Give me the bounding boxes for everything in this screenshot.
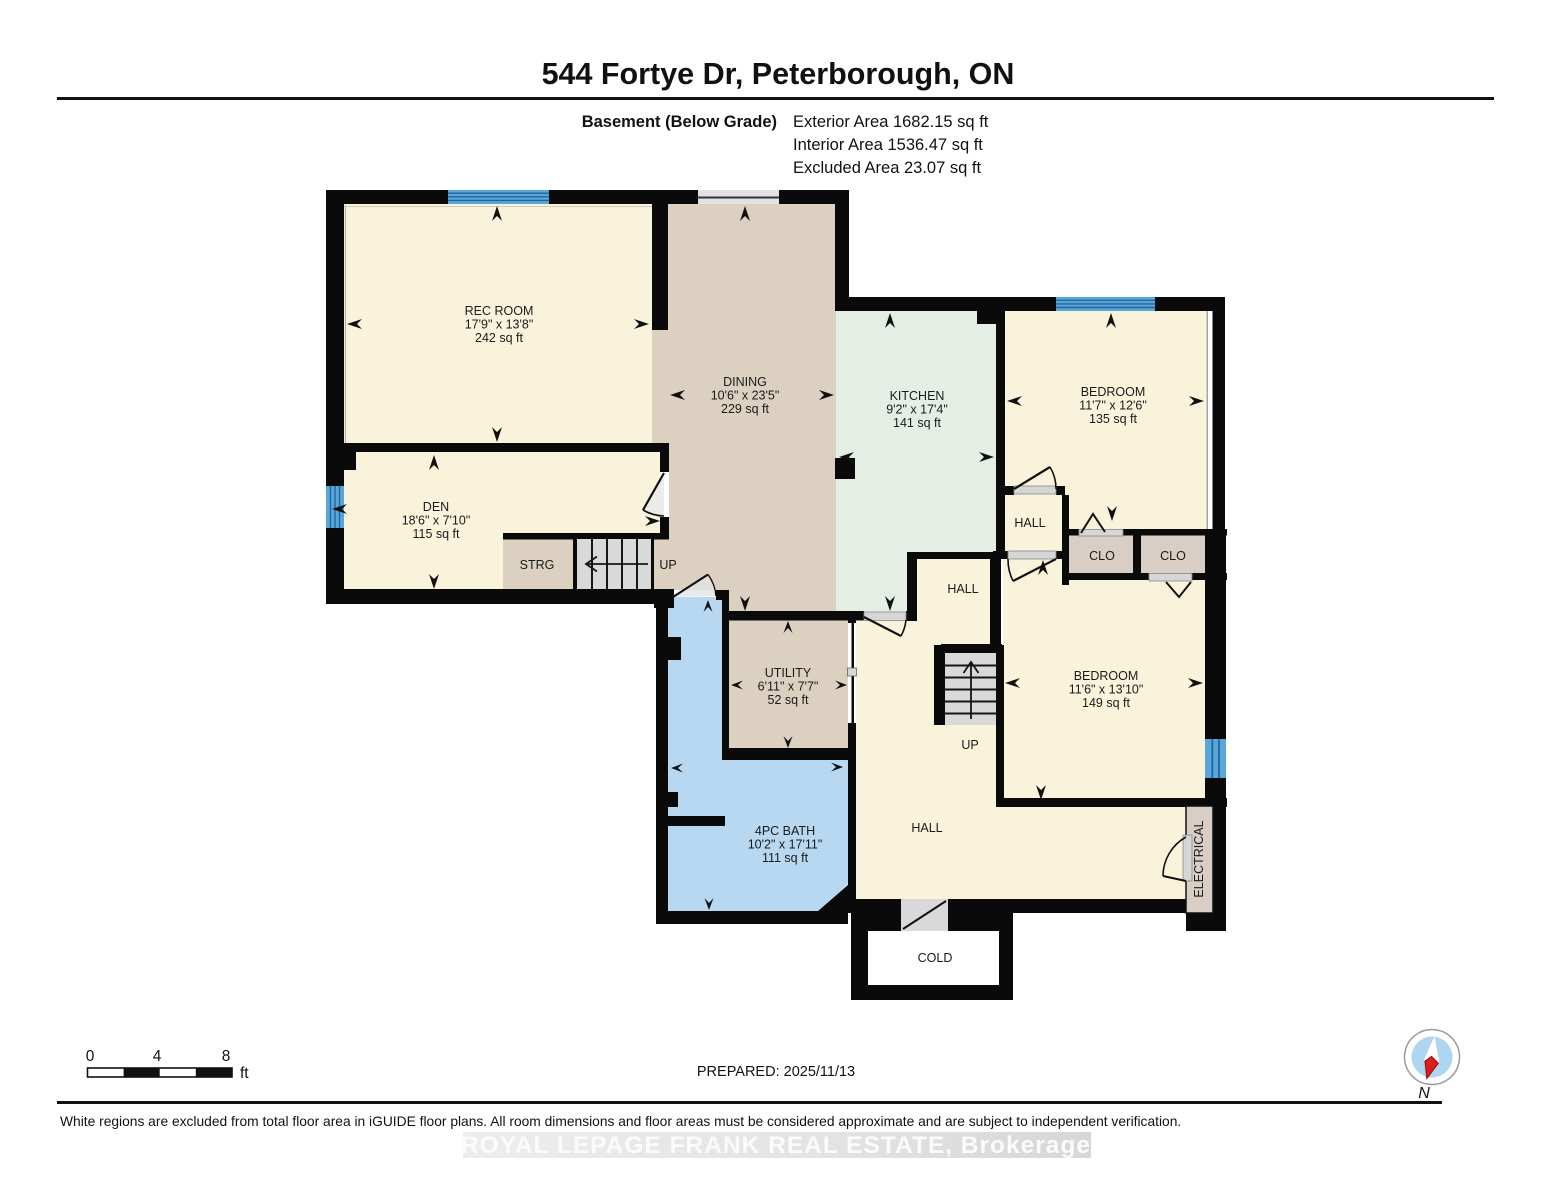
svg-text:Excluded Area 23.07 sq ft: Excluded Area 23.07 sq ft bbox=[793, 159, 981, 177]
svg-text:242 sq ft: 242 sq ft bbox=[475, 331, 523, 345]
svg-text:9'2" x 17'4": 9'2" x 17'4" bbox=[886, 402, 948, 416]
svg-text:UP: UP bbox=[961, 738, 978, 752]
svg-text:DEN: DEN bbox=[423, 500, 449, 514]
svg-text:REC ROOM: REC ROOM bbox=[465, 304, 534, 318]
svg-text:STRG: STRG bbox=[520, 558, 555, 572]
svg-text:4PC BATH: 4PC BATH bbox=[755, 824, 815, 838]
svg-text:52 sq ft: 52 sq ft bbox=[768, 693, 810, 707]
svg-text:18'6" x 7'10": 18'6" x 7'10" bbox=[402, 513, 471, 527]
svg-text:8: 8 bbox=[222, 1048, 231, 1065]
svg-text:Exterior Area 1682.15 sq ft: Exterior Area 1682.15 sq ft bbox=[793, 113, 989, 131]
svg-text:CLO: CLO bbox=[1160, 549, 1186, 563]
svg-text:HALL: HALL bbox=[947, 582, 978, 596]
svg-text:11'7" x 12'6": 11'7" x 12'6" bbox=[1079, 398, 1147, 412]
svg-text:UTILITY: UTILITY bbox=[765, 666, 812, 680]
svg-text:10'2" x 17'11": 10'2" x 17'11" bbox=[748, 837, 823, 851]
svg-text:BEDROOM: BEDROOM bbox=[1081, 385, 1146, 399]
svg-text:White regions are excluded fro: White regions are excluded from total fl… bbox=[60, 1114, 1181, 1129]
svg-text:0: 0 bbox=[86, 1048, 95, 1065]
svg-text:544 Fortye Dr, Peterborough, O: 544 Fortye Dr, Peterborough, ON bbox=[542, 57, 1015, 91]
svg-text:CLO: CLO bbox=[1089, 549, 1115, 563]
svg-text:COLD: COLD bbox=[918, 951, 953, 965]
svg-text:HALL: HALL bbox=[911, 821, 942, 835]
svg-text:ft: ft bbox=[240, 1065, 249, 1082]
svg-text:229 sq ft: 229 sq ft bbox=[721, 402, 769, 416]
svg-text:10'6" x 23'5": 10'6" x 23'5" bbox=[711, 388, 780, 402]
svg-text:115 sq ft: 115 sq ft bbox=[412, 527, 460, 541]
svg-text:ROYAL LEPAGE FRANK REAL ESTATE: ROYAL LEPAGE FRANK REAL ESTATE, Brokerag… bbox=[461, 1132, 1091, 1159]
svg-text:HALL: HALL bbox=[1014, 516, 1045, 530]
svg-text:135 sq ft: 135 sq ft bbox=[1089, 412, 1137, 426]
svg-text:PREPARED: 2025/11/13: PREPARED: 2025/11/13 bbox=[697, 1064, 855, 1080]
svg-text:149 sq ft: 149 sq ft bbox=[1082, 696, 1130, 710]
svg-text:ELECTRICAL: ELECTRICAL bbox=[1192, 820, 1206, 897]
svg-text:Basement (Below Grade): Basement (Below Grade) bbox=[582, 113, 777, 131]
svg-text:141 sq ft: 141 sq ft bbox=[893, 416, 941, 430]
svg-text:N: N bbox=[1418, 1085, 1430, 1102]
svg-text:4: 4 bbox=[153, 1048, 162, 1065]
svg-text:111 sq ft: 111 sq ft bbox=[762, 851, 809, 865]
svg-text:11'6" x 13'10": 11'6" x 13'10" bbox=[1069, 682, 1144, 696]
svg-text:UP: UP bbox=[659, 558, 676, 572]
svg-text:DINING: DINING bbox=[723, 375, 767, 389]
svg-text:6'11" x 7'7": 6'11" x 7'7" bbox=[758, 679, 819, 693]
svg-text:KITCHEN: KITCHEN bbox=[890, 389, 945, 403]
svg-text:BEDROOM: BEDROOM bbox=[1074, 669, 1139, 683]
svg-text:17'9" x 13'8": 17'9" x 13'8" bbox=[465, 317, 534, 331]
svg-text:Interior Area 1536.47 sq ft: Interior Area 1536.47 sq ft bbox=[793, 136, 983, 154]
